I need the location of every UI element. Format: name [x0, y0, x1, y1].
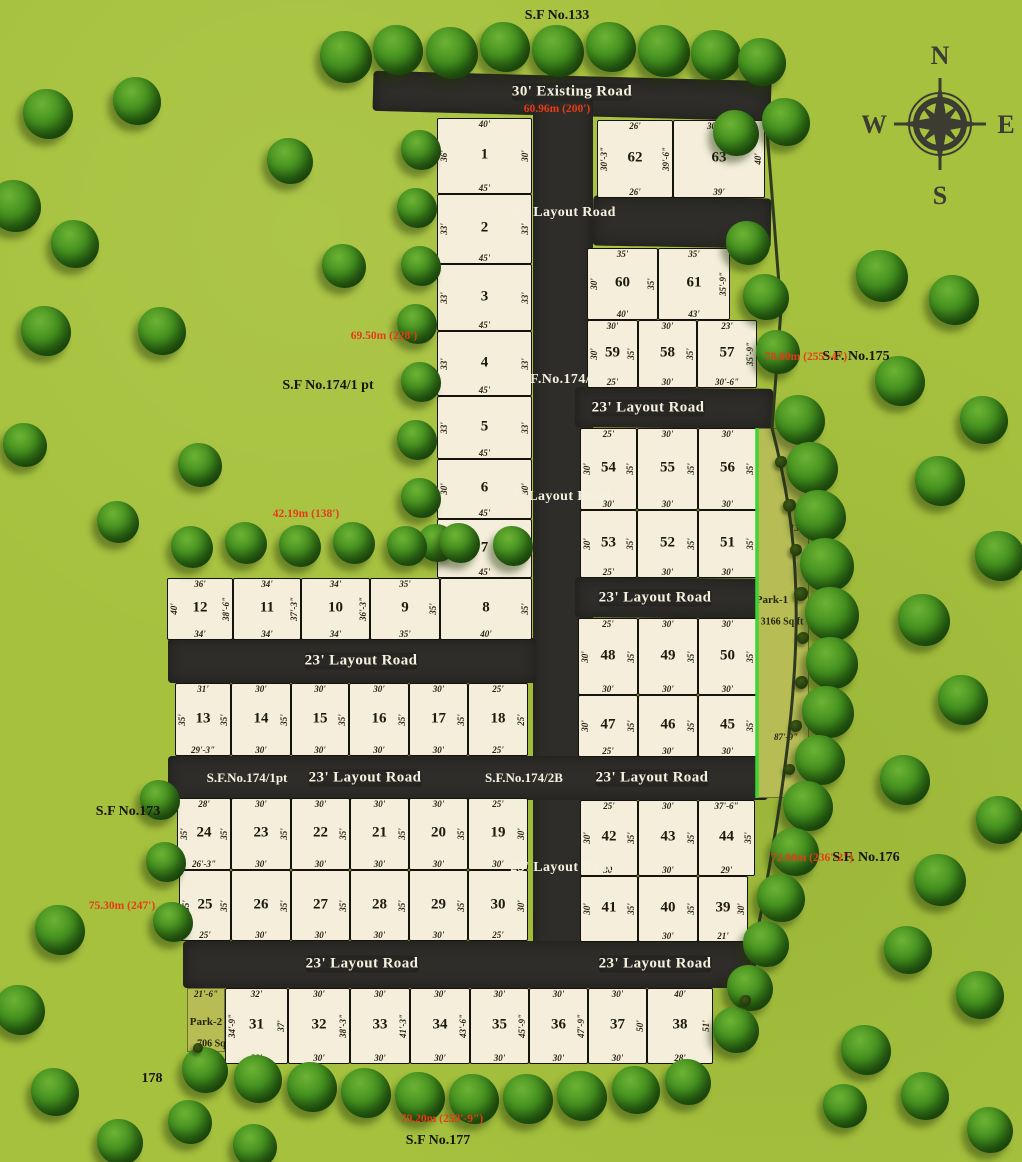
- tree-icon: [503, 1074, 553, 1124]
- plot-32-dim-t: 30': [289, 989, 349, 999]
- plot-58-dim-r: 35': [685, 339, 695, 369]
- plot-45: 4530'35': [698, 695, 757, 757]
- map-label: 30' Existing Road: [512, 84, 632, 101]
- plot-40: 4030'35': [638, 876, 698, 942]
- plot-24-dim-t: 28': [178, 799, 230, 809]
- plot-34-dim-b: 30': [411, 1053, 469, 1063]
- plot-60-dim-t: 35': [588, 249, 657, 259]
- plot-58-dim-b: 30': [639, 377, 696, 387]
- plot-43-dim-r: 35': [686, 823, 696, 853]
- tree-icon: [35, 905, 85, 955]
- plot-20-dim-t: 30': [410, 799, 467, 809]
- tree-icon: [493, 526, 533, 566]
- plot-23-dim-r: 35': [279, 819, 289, 849]
- compass-north-label: N: [931, 41, 950, 70]
- tree-icon: [786, 442, 838, 494]
- plot-57-dim-b: 30'-6": [698, 377, 756, 387]
- tree-icon: [775, 395, 825, 445]
- plot-12-dim-b: 34': [168, 629, 232, 639]
- plot-35: 3530'30'45'-9": [470, 988, 529, 1064]
- tree-icon: [915, 456, 965, 506]
- plot-49: 4930'30'35': [638, 618, 698, 695]
- plot-20-dim-b: 30': [410, 859, 467, 869]
- tree-icon: [762, 98, 810, 146]
- plot-15: 1530'30'35': [291, 683, 349, 756]
- tree-icon: [856, 250, 908, 302]
- plot-35-dim-b: 30': [471, 1053, 528, 1063]
- plot-3-dim-l: 33': [439, 283, 449, 313]
- plot-28-dim-b: 30': [351, 930, 408, 940]
- plot-27: 2730'35': [291, 870, 350, 941]
- plot-51-dim-r: 35': [745, 529, 755, 559]
- plot-56-dim-r: 35': [745, 454, 755, 484]
- tree-icon: [168, 1100, 212, 1144]
- tree-icon: [726, 221, 770, 265]
- tree-icon: [23, 89, 73, 139]
- plot-13-dim-b: 29'-3": [176, 745, 230, 755]
- map-label: 23' Layout Road: [309, 770, 422, 787]
- plot-55: 5530'30'35': [637, 428, 698, 510]
- plot-47-dim-l: 30': [580, 711, 590, 741]
- plot-24-dim-l: 35': [179, 819, 189, 849]
- plot-5-dim-l: 33': [439, 413, 449, 443]
- map-label: 23' Layout Road: [592, 400, 705, 417]
- plot-62-dim-b: 26': [598, 187, 672, 197]
- plot-56-dim-t: 30': [699, 429, 756, 439]
- tree-icon: [146, 842, 186, 882]
- plot-22-dim-b: 30': [292, 859, 349, 869]
- plot-26: 2630'35': [231, 870, 291, 941]
- plot-37: 3730'30'50': [588, 988, 647, 1064]
- plot-13-dim-l: 35': [177, 705, 187, 735]
- plot-31: 3132'32'34'-9"37': [225, 988, 288, 1064]
- tree-icon: [938, 675, 988, 725]
- plot-40-dim-b: 30': [639, 931, 697, 941]
- plot-8-dim-b: 40': [441, 629, 531, 639]
- plot-54-dim-r: 35': [625, 454, 635, 484]
- plot-18-dim-b: 25': [469, 745, 527, 755]
- plot-18: 1825'25'25': [468, 683, 528, 756]
- park-1-area-label: 3166 Sq.ft: [761, 617, 804, 628]
- plot-32-dim-b: 30': [289, 1053, 349, 1063]
- plot-47-dim-r: 35': [626, 711, 636, 741]
- tree-icon: [795, 735, 845, 785]
- layout-plan-map: Park-13166 Sq.ft131'87'-9"Park-2706 Sq.f…: [0, 0, 1022, 1162]
- plot-10: 1034'34'36'-3": [301, 578, 370, 640]
- plot-15-dim-t: 30': [292, 684, 348, 694]
- tree-icon: [373, 25, 423, 75]
- tree-icon: [320, 31, 372, 83]
- plot-9: 935'35'35': [370, 578, 440, 640]
- tree-icon: [397, 420, 437, 460]
- tree-icon: [691, 30, 741, 80]
- plot-12: 1236'34'40'38'-6": [167, 578, 233, 640]
- plot-42-dim-t: 25': [581, 801, 637, 811]
- plot-38-dim-r: 51': [701, 1011, 711, 1041]
- plot-62-dim-l: 30'-3": [599, 144, 609, 174]
- tree-icon: [225, 522, 267, 564]
- plot-8-number: 8: [441, 599, 531, 616]
- plot-28-dim-r: 35': [397, 891, 407, 921]
- plot-34: 3430'30'43'-6": [410, 988, 470, 1064]
- tree-icon: [97, 501, 139, 543]
- plot-1: 140'45'36'30': [437, 118, 532, 194]
- plot-11-dim-b: 34': [234, 629, 300, 639]
- compass-rose: N S W E: [862, 38, 1018, 208]
- plot-8-dim-r: 35': [520, 594, 530, 624]
- plot-38-dim-t: 40': [648, 989, 712, 999]
- plot-5: 545'33'33': [437, 396, 532, 459]
- plot-52-dim-b: 30': [638, 567, 697, 577]
- plot-56-dim-b: 30': [699, 499, 756, 509]
- plot-1-dim-b: 45': [438, 183, 531, 193]
- map-label: 25' Layout Road: [505, 489, 611, 505]
- park-1-label: Park-1: [756, 594, 788, 606]
- plot-1-number: 1: [438, 146, 531, 163]
- tree-icon: [480, 22, 530, 72]
- plot-50: 5030'30'35': [698, 618, 757, 695]
- plot-10-dim-r: 36'-3": [358, 594, 368, 624]
- tree-icon: [401, 478, 441, 518]
- tree-icon: [914, 854, 966, 906]
- plot-14-dim-b: 30': [232, 745, 290, 755]
- map-label: 60.96m (200'): [524, 103, 590, 115]
- plot-53-dim-b: 25': [581, 567, 636, 577]
- plot-46-dim-b: 30': [639, 746, 697, 756]
- plot-48: 4825'30'30'35': [578, 618, 638, 695]
- plot-30-dim-r: 30': [516, 891, 526, 921]
- plot-36: 3630'30'47'-9": [529, 988, 588, 1064]
- plot-57: 5723'30'-6"35'-9": [697, 320, 757, 388]
- tree-icon: [960, 396, 1008, 444]
- plot-59-dim-r: 35': [626, 339, 636, 369]
- plot-18-dim-t: 25': [469, 684, 527, 694]
- plot-4-dim-b: 45': [438, 385, 531, 395]
- plot-61: 6135'43'35'-9": [658, 248, 730, 320]
- park-2-dimension: 21'-6": [194, 989, 218, 999]
- plot-44-dim-t: 37'-6": [699, 801, 754, 811]
- plot-9-dim-r: 35': [428, 594, 438, 624]
- plot-14-dim-r: 35': [279, 705, 289, 735]
- tree-icon: [743, 921, 789, 967]
- plot-12-dim-t: 36': [168, 579, 232, 589]
- tree-icon: [901, 1072, 949, 1120]
- plot-19-dim-r: 30': [516, 819, 526, 849]
- map-label: 72.00m (236'-2"): [771, 852, 853, 864]
- plot-13-dim-t: 31': [176, 684, 230, 694]
- tree-icon: [967, 1107, 1013, 1153]
- tree-icon: [794, 490, 846, 542]
- plot-3-dim-b: 45': [438, 320, 531, 330]
- map-label: 75.30m (247'): [89, 900, 155, 912]
- plot-21-dim-b: 30': [351, 859, 408, 869]
- tree-icon: [884, 926, 932, 974]
- plot-48-dim-t: 25': [579, 619, 637, 629]
- plot-35-dim-t: 30': [471, 989, 528, 999]
- park-1-dimension: 87'-9": [774, 732, 798, 742]
- bush-icon: [784, 764, 795, 775]
- map-label: 23' Layout Road: [599, 956, 712, 973]
- plot-37-dim-t: 30': [589, 989, 646, 999]
- tree-icon: [713, 110, 759, 156]
- tree-icon: [783, 781, 833, 831]
- plot-26-dim-r: 35': [279, 891, 289, 921]
- tree-icon: [440, 523, 480, 563]
- plot-6-dim-b: 45': [438, 508, 531, 518]
- plot-34-dim-r: 43'-6": [458, 1011, 468, 1041]
- plot-48-dim-l: 30': [580, 642, 590, 672]
- tree-icon: [806, 637, 858, 689]
- plot-7-dim-b: 45': [438, 567, 531, 577]
- plot-30-dim-b: 25': [469, 930, 527, 940]
- tree-icon: [975, 531, 1022, 581]
- plot-31-dim-t: 32': [226, 989, 287, 999]
- plot-23-dim-t: 30': [232, 799, 290, 809]
- tree-icon: [178, 443, 222, 487]
- tree-icon: [0, 985, 45, 1035]
- map-label: S.F.No.174/1pt: [207, 770, 288, 786]
- plot-62-dim-r: 39'-6": [661, 144, 671, 174]
- plot-12-dim-l: 40': [169, 594, 179, 624]
- plot-23-dim-b: 30': [232, 859, 290, 869]
- plot-4-dim-l: 33': [439, 349, 449, 379]
- tree-icon: [31, 1068, 79, 1116]
- plot-10-dim-b: 34': [302, 629, 369, 639]
- plot-38: 3840'28'51': [647, 988, 713, 1064]
- tree-icon: [805, 587, 859, 641]
- plot-63-number: 63: [674, 149, 764, 166]
- plot-22: 2230'30'35': [291, 798, 350, 870]
- plot-57-dim-r: 35'-9": [745, 339, 755, 369]
- tree-icon: [713, 1007, 759, 1053]
- tree-icon: [333, 522, 375, 564]
- plot-25-dim-r: 35': [219, 891, 229, 921]
- plot-27-dim-r: 35': [338, 891, 348, 921]
- plot-11-dim-t: 34': [234, 579, 300, 589]
- plot-51-dim-b: 30': [699, 567, 756, 577]
- plot-44: 4437'-6"29'35': [698, 800, 755, 876]
- plot-30: 3025'30': [468, 870, 528, 941]
- tree-icon: [234, 1055, 282, 1103]
- plot-33-dim-b: 30': [351, 1053, 409, 1063]
- tree-icon: [387, 526, 427, 566]
- plot-46: 4630'35': [638, 695, 698, 757]
- plot-60-dim-r: 35': [646, 269, 656, 299]
- plot-50-dim-b: 30': [699, 684, 756, 694]
- plot-39-dim-r: 30': [736, 894, 746, 924]
- plot-54-dim-t: 25': [581, 429, 636, 439]
- plot-44-dim-b: 29': [699, 865, 754, 875]
- plot-3-dim-r: 33': [520, 283, 530, 313]
- tree-icon: [612, 1066, 660, 1114]
- tree-icon: [287, 1062, 337, 1112]
- plot-37-dim-r: 50': [635, 1011, 645, 1041]
- compass-east-label: E: [997, 110, 1014, 139]
- plot-61-dim-r: 35'-9": [718, 269, 728, 299]
- tree-icon: [976, 796, 1022, 844]
- compass-south-label: S: [933, 181, 947, 208]
- plot-17-dim-b: 30': [410, 745, 467, 755]
- plot-53-dim-r: 35': [625, 529, 635, 559]
- plot-39-dim-b: 21': [699, 931, 747, 941]
- tree-icon: [727, 965, 773, 1011]
- tree-icon: [557, 1071, 607, 1121]
- plot-33-dim-r: 41'-3": [398, 1011, 408, 1041]
- tree-icon: [341, 1068, 391, 1118]
- map-label: 78.00m (255'-4"): [765, 351, 847, 363]
- plot-36-dim-b: 30': [530, 1053, 587, 1063]
- plot-43-dim-t: 30': [639, 801, 697, 811]
- park-2-label: Park-2: [190, 1016, 222, 1028]
- tree-icon: [113, 77, 161, 125]
- map-label: 79.20m (259'-9"): [401, 1113, 483, 1125]
- plot-62-dim-t: 26': [598, 121, 672, 131]
- plot-2-dim-l: 33': [439, 214, 449, 244]
- plot-4-number: 4: [438, 354, 531, 371]
- tree-icon: [823, 1084, 867, 1128]
- tree-icon: [586, 22, 636, 72]
- plot-1-dim-t: 40': [438, 119, 531, 129]
- plot-28: 2830'35': [350, 870, 409, 941]
- tree-icon: [426, 27, 478, 79]
- tree-icon: [743, 274, 789, 320]
- tree-icon: [802, 686, 854, 738]
- plot-16-dim-r: 35': [397, 705, 407, 735]
- map-label: 23' Layout Road: [599, 590, 712, 607]
- plot-49-dim-b: 30': [639, 684, 697, 694]
- tree-icon: [3, 423, 47, 467]
- map-label: 25' Layout Road: [510, 860, 616, 876]
- plot-23: 2330'30'35': [231, 798, 291, 870]
- map-label: 42.19m (138'): [273, 508, 339, 520]
- plot-19-dim-t: 25': [469, 799, 527, 809]
- plot-9-dim-t: 35': [371, 579, 439, 589]
- map-label: 23' Layout Road: [305, 653, 418, 670]
- tree-icon: [138, 307, 186, 355]
- plot-39: 3921'30': [698, 876, 748, 942]
- plot-44-dim-r: 35': [743, 823, 753, 853]
- map-label: 178: [142, 1071, 163, 1087]
- plot-2-number: 2: [438, 219, 531, 236]
- plot-41-dim-l: 30': [582, 894, 592, 924]
- plot-13: 1331'29'-3"35'35': [175, 683, 231, 756]
- plot-15-dim-b: 30': [292, 745, 348, 755]
- bush-icon: [783, 499, 796, 512]
- plot-11-dim-r: 37'-3": [289, 594, 299, 624]
- plot-60-dim-b: 40': [588, 309, 657, 319]
- plot-35-dim-r: 45'-9": [517, 1011, 527, 1041]
- plot-45-dim-b: 30': [699, 746, 756, 756]
- tree-icon: [233, 1124, 277, 1162]
- plot-16-dim-b: 30': [350, 745, 408, 755]
- plot-52-dim-r: 35': [686, 529, 696, 559]
- plot-22-dim-t: 30': [292, 799, 349, 809]
- plot-3: 345'33'33': [437, 264, 532, 331]
- plot-58-dim-t: 30': [639, 321, 696, 331]
- plot-54-dim-l: 30': [582, 454, 592, 484]
- plot-32-dim-r: 38'-3": [338, 1011, 348, 1041]
- tree-icon: [880, 755, 930, 805]
- plot-48-dim-b: 30': [579, 684, 637, 694]
- plot-20: 2030'30'35': [409, 798, 468, 870]
- map-label: S.F.No.174/2A: [518, 372, 608, 388]
- plot-20-dim-r: 35': [456, 819, 466, 849]
- plot-5-number: 5: [438, 418, 531, 435]
- tree-icon: [929, 275, 979, 325]
- plot-52: 5230'35': [637, 510, 698, 578]
- plot-34-dim-t: 30': [411, 989, 469, 999]
- plot-3-number: 3: [438, 288, 531, 305]
- plot-22-dim-r: 35': [338, 819, 348, 849]
- tree-icon: [401, 362, 441, 402]
- tree-icon: [397, 188, 437, 228]
- plot-16-dim-t: 30': [350, 684, 408, 694]
- plot-17: 1730'30'35': [409, 683, 468, 756]
- plot-49-dim-r: 35': [686, 642, 696, 672]
- tree-icon: [171, 526, 213, 568]
- plot-46-dim-r: 35': [686, 711, 696, 741]
- plot-62: 6226'26'30'-3"39'-6": [597, 120, 673, 198]
- plot-1-dim-r: 30': [520, 141, 530, 171]
- plot-17-dim-r: 35': [456, 705, 466, 735]
- plot-55-dim-r: 35': [686, 454, 696, 484]
- tree-icon: [97, 1119, 143, 1162]
- plot-27-dim-b: 30': [292, 930, 349, 940]
- plot-31-dim-l: 34'-9": [227, 1011, 237, 1041]
- plot-33: 3330'30'41'-3": [350, 988, 410, 1064]
- plot-33-dim-t: 30': [351, 989, 409, 999]
- tree-icon: [401, 130, 441, 170]
- plot-57-dim-t: 23': [698, 321, 756, 331]
- plot-36-dim-t: 30': [530, 989, 587, 999]
- tree-icon: [51, 220, 99, 268]
- plot-60: 6035'40'30'35': [587, 248, 658, 320]
- bush-icon: [740, 995, 751, 1006]
- tree-icon: [0, 180, 41, 232]
- plot-53-dim-l: 30': [582, 529, 592, 559]
- plot-45-dim-r: 35': [745, 711, 755, 741]
- plot-53: 5325'30'35': [580, 510, 637, 578]
- plot-16: 1630'30'35': [349, 683, 409, 756]
- map-label: 25' Layout Road: [510, 205, 616, 221]
- plot-9-dim-b: 35': [371, 629, 439, 639]
- plot-43: 4330'30'35': [638, 800, 698, 876]
- plot-59-dim-t: 30': [588, 321, 637, 331]
- plot-21-dim-r: 35': [397, 819, 407, 849]
- tree-icon: [638, 25, 690, 77]
- plot-56: 5630'30'35': [698, 428, 757, 510]
- plot-5-dim-r: 33': [520, 413, 530, 443]
- plot-47: 4725'30'35': [578, 695, 638, 757]
- tree-icon: [898, 594, 950, 646]
- plot-1-dim-l: 36': [439, 141, 449, 171]
- tree-icon: [800, 538, 854, 592]
- plot-26-dim-b: 30': [232, 930, 290, 940]
- map-label: S.F No.133: [525, 8, 589, 24]
- plot-5-dim-b: 45': [438, 448, 531, 458]
- map-label: 69.50m (228'): [351, 330, 417, 342]
- plot-49-dim-t: 30': [639, 619, 697, 629]
- map-label: 23' Layout Road: [306, 956, 419, 973]
- plot-42-dim-l: 30': [582, 823, 592, 853]
- plot-21-dim-t: 30': [351, 799, 408, 809]
- plot-61-dim-b: 43': [659, 309, 729, 319]
- plot-29-dim-r: 35': [456, 891, 466, 921]
- bush-icon: [795, 676, 808, 689]
- plot-21: 2130'30'35': [350, 798, 409, 870]
- tree-icon: [182, 1047, 228, 1093]
- plot-51: 5130'35': [698, 510, 757, 578]
